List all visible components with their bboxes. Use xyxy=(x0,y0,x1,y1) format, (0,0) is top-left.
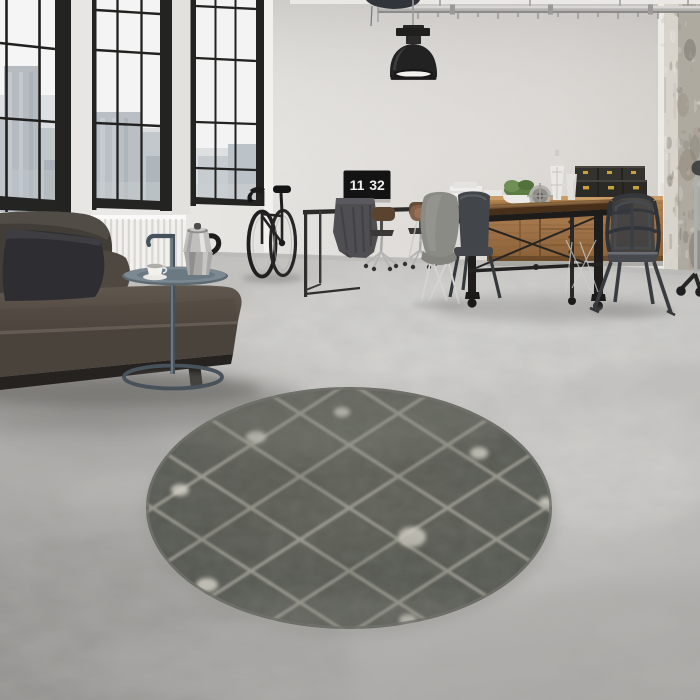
svg-text:32: 32 xyxy=(369,177,385,193)
svg-text:11: 11 xyxy=(350,177,365,193)
